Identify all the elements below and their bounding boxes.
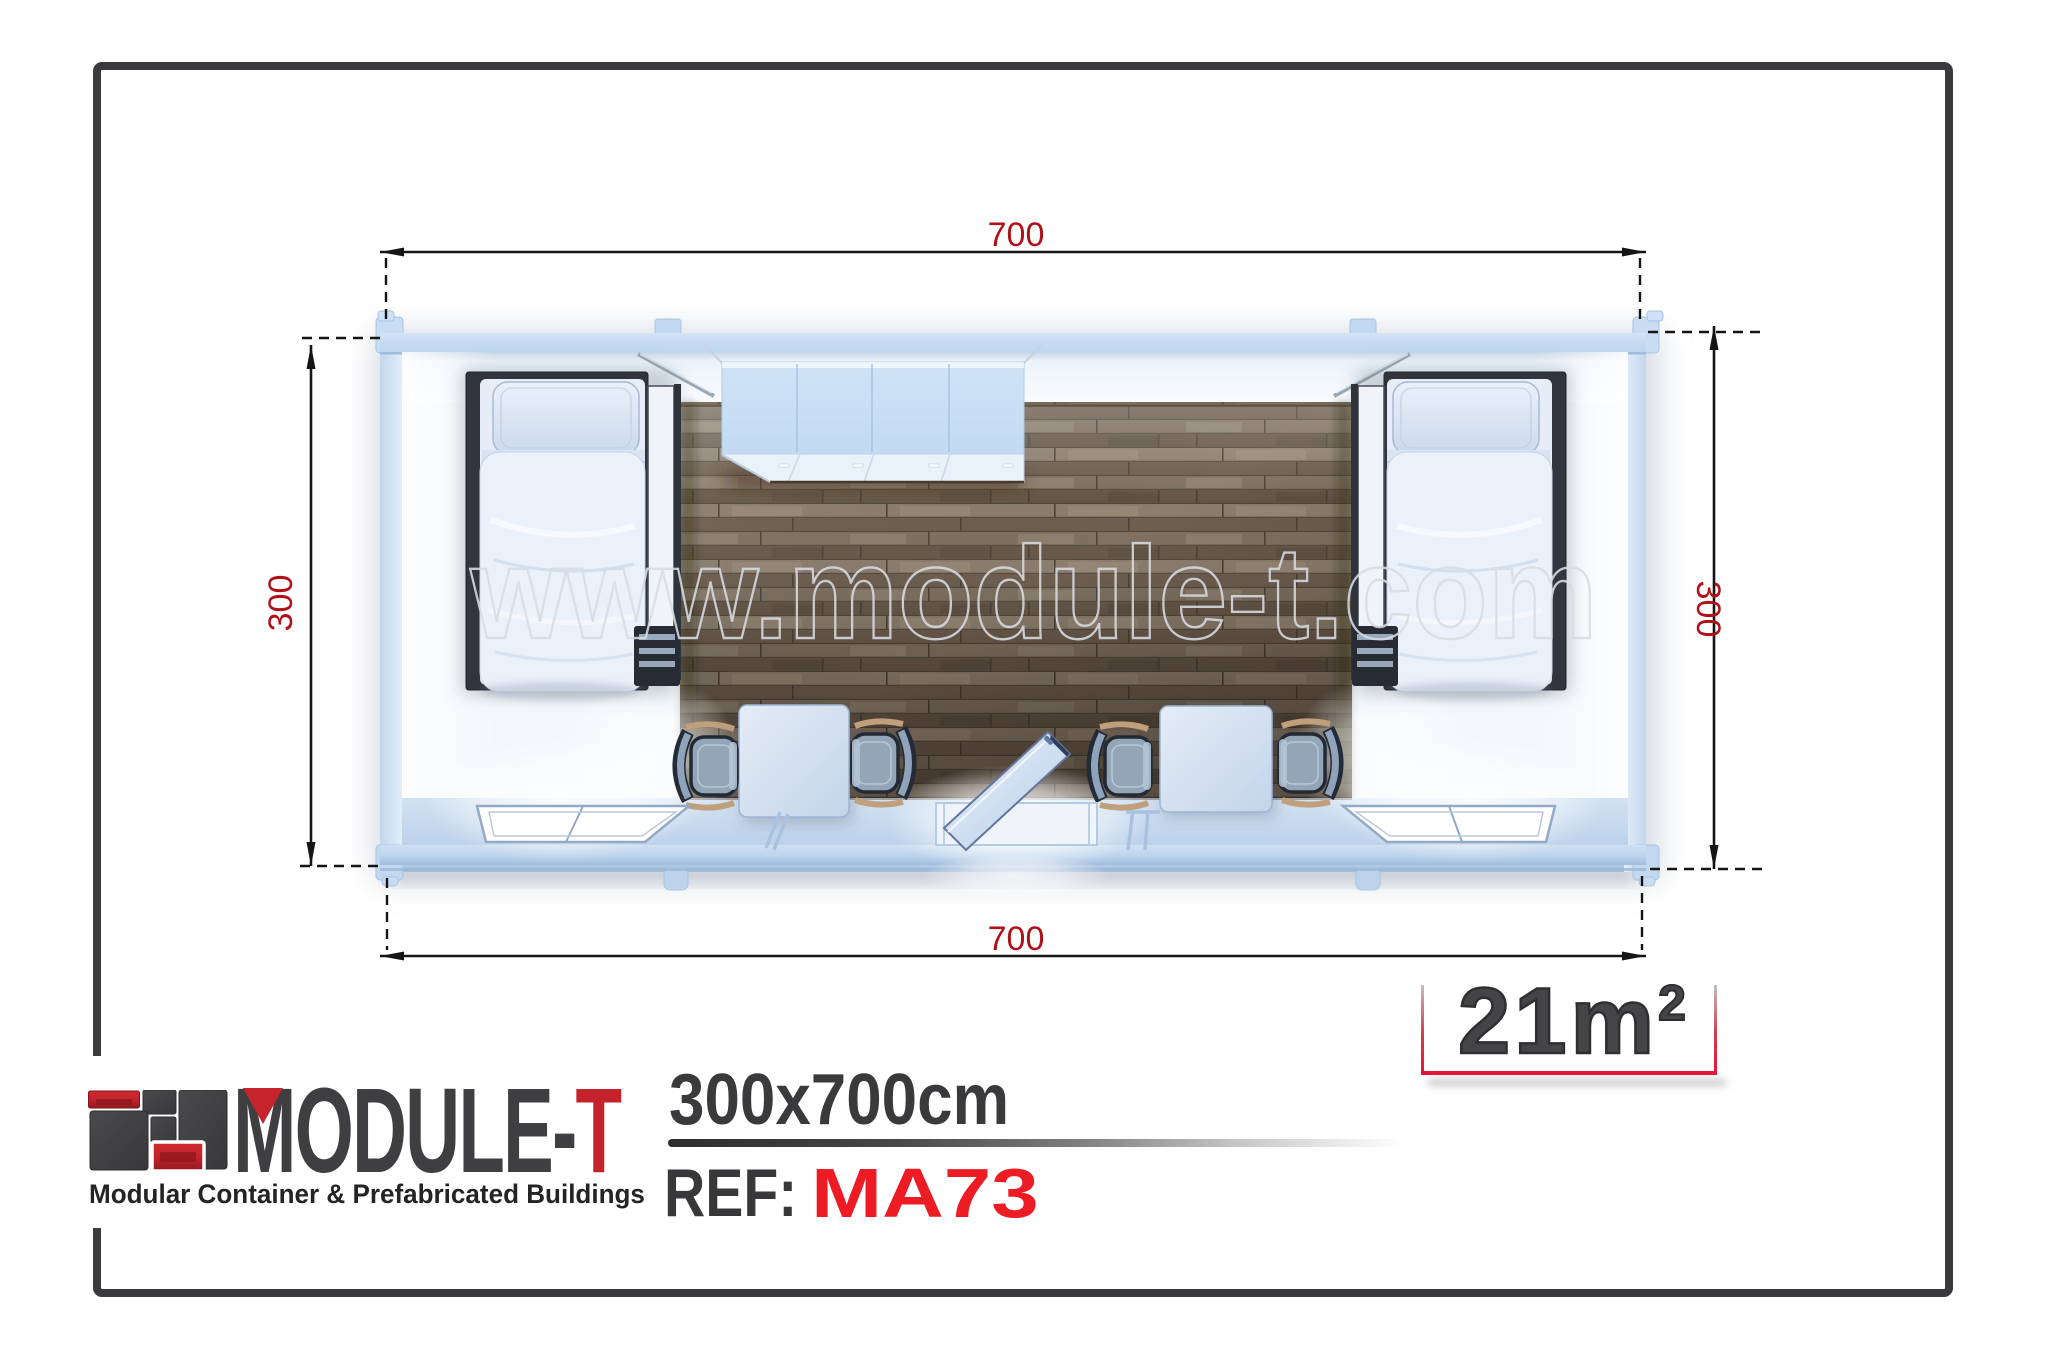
svg-text:300: 300 [262,575,300,632]
svg-text:300: 300 [1689,581,1727,638]
svg-text:www.module-t.com: www.module-t.com [470,519,1598,666]
svg-text:700: 700 [988,920,1045,958]
svg-text:700: 700 [988,216,1045,254]
